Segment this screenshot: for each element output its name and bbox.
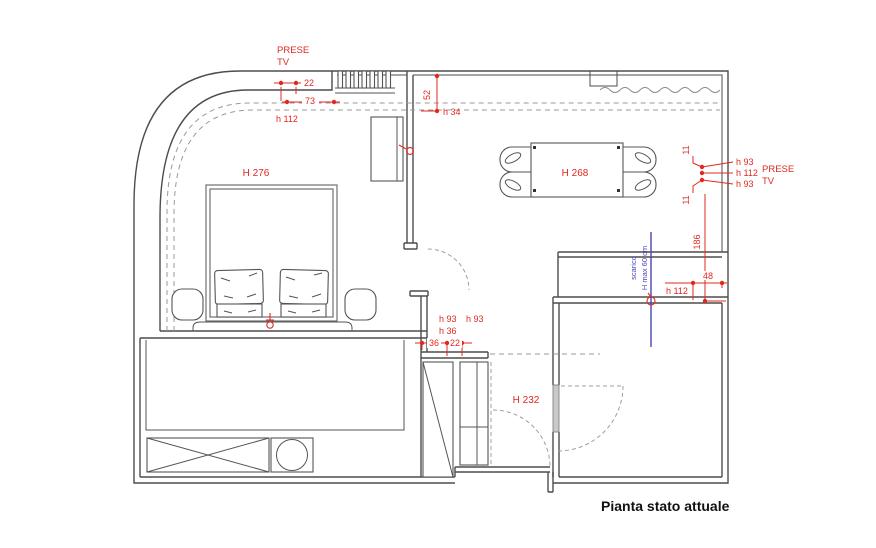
dim-h112-right-label: h 112 xyxy=(736,168,758,178)
dim-22b-label: 22 xyxy=(450,338,460,348)
prese-tv-right-line2: TV xyxy=(762,176,775,187)
bedroom-height-label: H 276 xyxy=(243,168,270,179)
dim-h93-right2-label: h 93 xyxy=(736,179,754,189)
corridor-cabinets xyxy=(423,362,491,477)
dim-11b-elbow xyxy=(693,180,702,193)
dim-h112-bottom-right-label: h 112 xyxy=(666,286,688,296)
tall-cabinet-2 xyxy=(460,362,488,465)
dim-point xyxy=(435,109,439,113)
dim-h93-right1-label: h 93 xyxy=(736,157,754,167)
dim-h93-mid2-label: h 93 xyxy=(466,314,484,324)
dim-11a-label: 11 xyxy=(681,145,691,154)
dim-52-label: 52 xyxy=(422,90,432,100)
prese-tv-left-line2: TV xyxy=(277,57,290,68)
pillow-left xyxy=(215,269,264,317)
bedroom-door-swing-arc xyxy=(428,249,469,290)
dim-point xyxy=(691,281,695,285)
radiator-fin xyxy=(346,71,351,88)
dim-22-line xyxy=(274,83,301,101)
radiator-fin xyxy=(378,71,383,88)
dim-h34-label: h 34 xyxy=(443,107,461,117)
closet-outline xyxy=(146,340,404,430)
prese-tv-left-line1: PRESE xyxy=(277,45,309,56)
dim-36-22-line xyxy=(415,343,472,356)
bathroom-door-swing-arc xyxy=(558,386,623,451)
wardrobe-unit xyxy=(371,117,403,181)
dim-186-label: 186 xyxy=(692,234,702,249)
entry-door-swing-arc xyxy=(493,410,550,467)
dim-11b-label: 11 xyxy=(681,195,691,204)
dim-48-label: 48 xyxy=(703,271,713,281)
dim-point xyxy=(703,299,707,303)
dim-point xyxy=(700,171,704,175)
radiator xyxy=(335,71,395,93)
scarico-label: scarico xyxy=(629,256,638,280)
dim-22-label: 22 xyxy=(304,78,314,88)
dims-top-left: PRESE TV 22 73 h 112 xyxy=(274,45,340,124)
bathroom-door-leaf xyxy=(553,385,559,432)
radiator-fin xyxy=(338,71,343,88)
dim-h112-top-left-label: h 112 xyxy=(276,114,298,124)
dim-73-label: 73 xyxy=(305,96,315,106)
dims-right: h 93 h 112 h 93 PRESE TV 11 11 186 48 h … xyxy=(665,145,794,303)
prese-tv-right-line1: PRESE xyxy=(762,164,794,175)
table-corner-mark xyxy=(617,146,620,149)
pillow-right xyxy=(280,269,329,317)
washing-machine xyxy=(271,438,313,472)
dim-point xyxy=(435,74,439,78)
table-corner-mark xyxy=(533,146,536,149)
corridor-height-label: H 232 xyxy=(513,395,540,406)
dim-point xyxy=(294,81,298,85)
floor-plan-page: scarico H max 60 cm PRESE TV 22 73 h 112… xyxy=(0,0,876,548)
dim-point xyxy=(720,281,724,285)
radiator-fin xyxy=(370,71,375,88)
corridor-top-wall xyxy=(421,352,488,358)
dining-height-label: H 268 xyxy=(562,168,589,179)
dim-36-label: 36 xyxy=(429,338,439,348)
plumbing-scarico: scarico H max 60 cm xyxy=(629,232,655,347)
radiator-fin xyxy=(386,71,391,88)
dim-point xyxy=(445,341,449,345)
radiator-base xyxy=(335,88,395,93)
wardrobe-crossed xyxy=(147,438,269,472)
drawing-title: Pianta stato attuale xyxy=(601,498,730,514)
dim-point xyxy=(285,100,289,104)
dim-h93-mid1-label: h 93 xyxy=(439,314,457,324)
bedroom-furniture xyxy=(172,117,413,331)
nightstand-right xyxy=(345,289,376,320)
dim-h36-label: h 36 xyxy=(439,326,457,336)
dims-middle-bottom: h 93 h 93 h 36 36 22 xyxy=(415,314,484,356)
table-corner-mark xyxy=(617,189,620,192)
closet-room xyxy=(146,340,404,472)
dims-top-middle: 52 h 34 xyxy=(421,74,461,117)
bathroom-walls xyxy=(553,297,728,477)
radiator-fin xyxy=(354,71,359,88)
bedroom-south-wall xyxy=(140,331,427,338)
radiator-fin xyxy=(362,71,367,88)
top-wall-pillar xyxy=(590,71,617,86)
dim-point xyxy=(332,100,336,104)
break-squiggle-line xyxy=(600,88,720,93)
entry-sill-and-stub xyxy=(455,467,553,492)
table-corner-mark xyxy=(533,189,536,192)
nightstand-left xyxy=(172,289,203,320)
dim-point xyxy=(279,81,283,85)
scarico-hmax-label: H max 60 cm xyxy=(640,246,649,290)
tall-cabinet-1 xyxy=(423,362,453,477)
dim-point xyxy=(420,341,424,345)
floor-plan-drawing: scarico H max 60 cm PRESE TV 22 73 h 112… xyxy=(0,0,876,548)
